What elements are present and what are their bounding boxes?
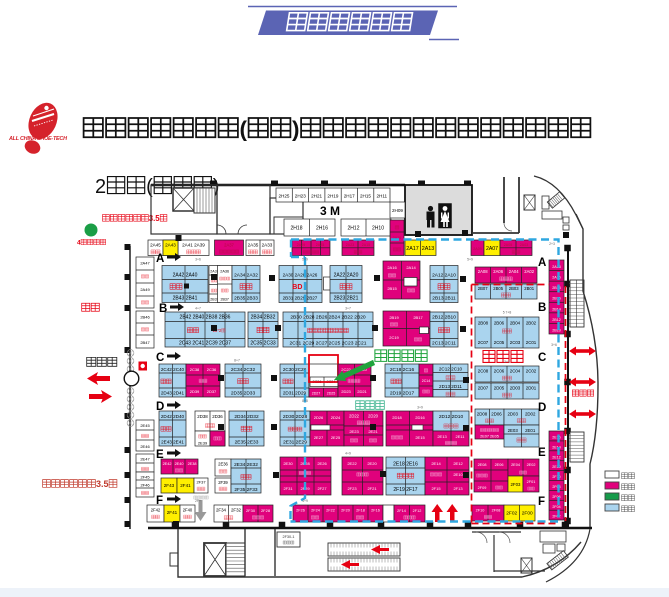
- svg-text:2H18: 2H18: [291, 226, 303, 232]
- svg-text:2F26: 2F26: [296, 509, 305, 513]
- svg-text:2B30 2B28 2B26 2B24 2B22 2B20: 2B30 2B28 2B26 2B24 2B22 2B20: [290, 315, 366, 321]
- svg-text:2F24: 2F24: [311, 509, 320, 513]
- svg-text:2E18 2E16: 2E18 2E16: [393, 462, 418, 468]
- svg-text:2A36: 2A36: [220, 270, 229, 274]
- svg-text:2A22 2A20: 2A22 2A20: [334, 273, 359, 279]
- svg-text:2A16: 2A16: [387, 265, 397, 270]
- svg-text:2B12: 2B12: [552, 318, 561, 322]
- svg-text:2E39: 2E39: [198, 441, 208, 446]
- svg-text:2E12: 2E12: [552, 455, 560, 459]
- svg-text:2A13: 2A13: [422, 246, 435, 252]
- svg-text:2C03: 2C03: [510, 340, 521, 345]
- svg-text:2A29: 2A29: [297, 243, 305, 247]
- svg-text:5+9: 5+9: [467, 258, 473, 262]
- svg-text:2D18: 2D18: [392, 415, 402, 420]
- svg-text:2D02: 2D02: [525, 412, 536, 417]
- svg-text:2B08: 2B08: [478, 321, 489, 326]
- svg-text:2F13: 2F13: [453, 486, 463, 491]
- svg-text:5 7+8: 5 7+8: [503, 311, 512, 315]
- svg-text:8+8: 8+8: [302, 399, 308, 403]
- svg-text:2D03: 2D03: [510, 386, 521, 391]
- svg-text:2E27: 2E27: [314, 435, 324, 440]
- svg-text:2E47: 2E47: [140, 457, 150, 462]
- svg-text:3+4: 3+4: [504, 360, 510, 364]
- svg-text:2F39: 2F39: [218, 480, 228, 485]
- svg-text:2A14: 2A14: [406, 265, 416, 270]
- svg-text:2A47: 2A47: [140, 261, 150, 266]
- svg-text:2E40: 2E40: [175, 462, 184, 466]
- svg-text:2F22: 2F22: [326, 509, 335, 513]
- svg-text:2C43 2C41 2C39 2C37: 2C43 2C41 2C39 2C37: [179, 341, 231, 347]
- svg-text:2B46: 2B46: [140, 315, 150, 320]
- svg-text:2E34 2E32: 2E34 2E32: [234, 462, 258, 468]
- svg-text:2F37: 2F37: [196, 480, 206, 485]
- svg-text:2F23: 2F23: [347, 486, 357, 491]
- svg-text:2E06: 2E06: [495, 463, 504, 467]
- svg-text:2E04: 2E04: [511, 463, 520, 467]
- svg-text:2C04: 2C04: [510, 369, 521, 374]
- svg-text:2A05: 2A05: [504, 243, 512, 247]
- svg-text:2A09: 2A09: [473, 247, 481, 251]
- svg-text:2F04: 2F04: [552, 505, 560, 509]
- svg-text:2H11: 2H11: [376, 194, 387, 199]
- svg-text:2F45: 2F45: [140, 475, 150, 480]
- svg-text:2F28: 2F28: [261, 508, 271, 513]
- svg-text:2H21: 2H21: [311, 194, 322, 199]
- svg-text:2D37: 2D37: [207, 389, 217, 394]
- svg-text:2E11: 2E11: [455, 434, 465, 439]
- svg-text:2H09: 2H09: [392, 208, 403, 213]
- svg-text:2E20: 2E20: [367, 461, 377, 466]
- svg-text:2C08: 2C08: [478, 369, 489, 374]
- svg-text:2B35 2B33: 2B35 2B33: [234, 296, 258, 302]
- svg-text:2B31 2B29 2B27: 2B31 2B29 2B27: [283, 296, 318, 301]
- svg-text:2E01: 2E01: [525, 428, 536, 433]
- svg-text:2F+: 2F+: [195, 499, 201, 503]
- svg-text:2H25: 2H25: [279, 194, 290, 199]
- svg-text:2C06: 2C06: [494, 369, 505, 374]
- svg-text:2C18 2C16: 2C18 2C16: [390, 367, 415, 373]
- svg-text:2F41: 2F41: [167, 510, 178, 515]
- svg-text:2E45: 2E45: [140, 423, 150, 428]
- svg-text:2F14: 2F14: [397, 509, 406, 513]
- svg-text:4+9: 4+9: [345, 452, 351, 456]
- svg-text:2D30 2D28: 2D30 2D28: [283, 414, 308, 420]
- svg-text:2E08: 2E08: [478, 463, 487, 467]
- svg-text:2F15: 2F15: [431, 486, 441, 491]
- svg-text:4+7: 4+7: [195, 307, 201, 311]
- svg-text:2A02: 2A02: [524, 269, 534, 274]
- svg-text:B: B: [538, 302, 546, 314]
- svg-text:2D05: 2D05: [494, 386, 505, 391]
- svg-text:2F09: 2F09: [478, 486, 487, 490]
- svg-text:2C12 2C10: 2C12 2C10: [439, 367, 463, 372]
- svg-text:2A33: 2A33: [262, 243, 273, 248]
- svg-text:2: 2: [95, 176, 106, 198]
- svg-text:2D38: 2D38: [197, 414, 208, 419]
- svg-text:2F19 2F17: 2F19 2F17: [393, 487, 417, 493]
- svg-text:2F30: 2F30: [246, 508, 256, 513]
- svg-text:(: (: [240, 117, 248, 142]
- svg-text:B: B: [159, 303, 167, 315]
- svg-text:2D25: 2D25: [327, 392, 336, 396]
- svg-text:3+7: 3+7: [345, 307, 351, 311]
- svg-text:2B02: 2B02: [526, 321, 537, 326]
- svg-text:2C31 2C29 2C27 2C25 2C23 2C21: 2C31 2C29 2C27 2C25 2C23 2C21: [290, 341, 367, 347]
- svg-text:C: C: [538, 352, 546, 364]
- svg-text:2B07: 2B07: [478, 286, 488, 291]
- svg-text:2B17: 2B17: [413, 315, 423, 320]
- svg-text:2H10: 2H10: [372, 226, 384, 232]
- svg-text:2A45: 2A45: [150, 243, 161, 248]
- svg-text:2C14: 2C14: [422, 379, 431, 383]
- svg-text:2A41 2A39: 2A41 2A39: [182, 243, 205, 248]
- svg-text:2D39: 2D39: [190, 389, 200, 394]
- svg-text:2D31 2D29: 2D31 2D29: [283, 391, 307, 396]
- svg-text:2H15: 2H15: [360, 194, 371, 199]
- svg-text:2F35 2F33: 2F35 2F33: [234, 487, 258, 493]
- svg-text:2F03: 2F03: [510, 482, 521, 487]
- svg-text:2C30 2C28: 2C30 2C28: [283, 367, 307, 372]
- svg-text:2B19: 2B19: [389, 315, 399, 320]
- svg-text:2F30-1: 2F30-1: [282, 535, 294, 539]
- svg-text:2D35 2D33: 2D35 2D33: [231, 391, 256, 397]
- svg-text:D: D: [156, 401, 164, 413]
- svg-text:2E46: 2E46: [140, 444, 150, 449]
- svg-text:2A06: 2A06: [493, 269, 503, 274]
- svg-text:A: A: [538, 257, 546, 269]
- svg-text:2A04: 2A04: [509, 269, 519, 274]
- svg-text:2C19: 2C19: [389, 335, 399, 340]
- svg-text:2F20: 2F20: [341, 509, 350, 513]
- svg-text:2D36: 2D36: [212, 414, 223, 419]
- svg-text:2C34 2C32: 2C34 2C32: [231, 367, 256, 373]
- svg-text:2D01: 2D01: [526, 386, 537, 391]
- svg-text:2D03: 2D03: [507, 412, 518, 417]
- svg-text:2B05: 2B05: [493, 286, 503, 291]
- svg-text:4: 4: [77, 240, 81, 247]
- svg-text:2E23: 2E23: [349, 429, 359, 434]
- svg-text:2D42 2D40: 2D42 2D40: [161, 414, 185, 419]
- svg-text:5+9: 5+9: [302, 258, 308, 262]
- svg-text:2C05: 2C05: [494, 340, 505, 345]
- svg-text:2E35 2E33: 2E35 2E33: [235, 440, 259, 446]
- svg-text:3.5: 3.5: [96, 479, 109, 489]
- svg-text:2E42: 2E42: [163, 462, 172, 466]
- svg-text:A: A: [156, 253, 164, 265]
- svg-text:2E26: 2E26: [317, 461, 327, 466]
- svg-text:2F21: 2F21: [367, 486, 377, 491]
- svg-text:2E14: 2E14: [431, 461, 441, 466]
- svg-text:2F16: 2F16: [371, 509, 380, 513]
- svg-text:2B42 2B40 2B38 2B36: 2B42 2B40 2B38 2B36: [180, 315, 231, 321]
- svg-text:D: D: [538, 402, 546, 414]
- svg-text:2E30: 2E30: [283, 461, 293, 466]
- svg-text:2F27: 2F27: [317, 486, 327, 491]
- svg-text:2B43 2B41: 2B43 2B41: [173, 296, 198, 302]
- svg-text:2+3: 2+3: [549, 242, 555, 246]
- svg-text:2B01: 2B01: [524, 286, 534, 291]
- svg-text:2A07: 2A07: [486, 246, 498, 252]
- svg-text:F: F: [156, 495, 163, 507]
- svg-text:2D20: 2D20: [368, 414, 379, 419]
- svg-text:2F08: 2F08: [492, 509, 501, 513]
- svg-text:2D06: 2D06: [491, 412, 502, 417]
- svg-text:2H12: 2H12: [348, 226, 360, 232]
- svg-text:2C42 2C40: 2C42 2C40: [161, 367, 185, 372]
- svg-text:2A37: 2A37: [224, 243, 234, 248]
- svg-text:2D27: 2D27: [312, 392, 321, 396]
- svg-text:2D07: 2D07: [478, 386, 489, 391]
- svg-text:2E13: 2E13: [437, 434, 447, 439]
- svg-text:2B04: 2B04: [510, 321, 521, 326]
- svg-text:2E31 2E29: 2E31 2E29: [283, 440, 307, 446]
- svg-text:2B37: 2B37: [220, 298, 228, 302]
- svg-text:2A34 2A32: 2A34 2A32: [234, 273, 258, 279]
- svg-text:2E02: 2E02: [527, 463, 536, 467]
- svg-text:2B47: 2B47: [140, 340, 150, 345]
- svg-text:3+6: 3+6: [551, 343, 557, 347]
- svg-text:2F10: 2F10: [476, 509, 485, 513]
- svg-text:2E03: 2E03: [508, 428, 519, 433]
- svg-text:2F18: 2F18: [356, 509, 365, 513]
- svg-text:2F42: 2F42: [151, 508, 161, 513]
- svg-text:2A30 2A28 2A26: 2A30 2A28 2A26: [283, 273, 318, 278]
- svg-text:2A17: 2A17: [406, 246, 419, 252]
- svg-text:2F31: 2F31: [283, 486, 293, 491]
- svg-text:2B15: 2B15: [387, 286, 397, 291]
- svg-text:2E22: 2E22: [347, 461, 357, 466]
- svg-text:2H23: 2H23: [295, 194, 306, 199]
- svg-text:2D19 2D17: 2D19 2D17: [390, 391, 415, 397]
- svg-text:2F41: 2F41: [180, 483, 191, 488]
- svg-text:2D21: 2D21: [357, 389, 367, 394]
- svg-text:2A15: 2A15: [362, 243, 370, 247]
- svg-text:2C35 2C33: 2C35 2C33: [250, 341, 276, 347]
- svg-text:2B23 2B21: 2B23 2B21: [334, 296, 359, 302]
- svg-text:2C07: 2C07: [478, 340, 489, 345]
- svg-text:2H16: 2H16: [316, 226, 328, 232]
- svg-text:2D13 2D11: 2D13 2D11: [439, 384, 462, 389]
- svg-text:2A12 2A10: 2A12 2A10: [432, 273, 456, 279]
- svg-text:2C36: 2C36: [207, 367, 217, 372]
- svg-text:3+9: 3+9: [417, 406, 423, 410]
- svg-text:F: F: [538, 496, 545, 508]
- svg-text:2A42 2A40: 2A42 2A40: [173, 273, 198, 279]
- svg-text:2B06: 2B06: [494, 321, 505, 326]
- svg-text:2F01: 2F01: [527, 480, 536, 484]
- svg-text:2A23: 2A23: [346, 243, 354, 247]
- svg-text:C: C: [156, 352, 164, 364]
- svg-text:2E38: 2E38: [188, 462, 197, 466]
- svg-text:2F43: 2F43: [164, 483, 175, 488]
- svg-text:2F34: 2F34: [216, 508, 227, 513]
- svg-text:2A03: 2A03: [520, 243, 528, 247]
- svg-text:2F00: 2F00: [522, 511, 533, 517]
- svg-text:2B03: 2B03: [509, 286, 519, 291]
- svg-text:2D24: 2D24: [331, 415, 341, 420]
- svg-text:2A35: 2A35: [248, 243, 259, 248]
- svg-text:2E10: 2E10: [453, 472, 463, 477]
- svg-text:4+9: 4+9: [302, 499, 308, 503]
- svg-text:2B13 2B11: 2B13 2B11: [432, 296, 456, 302]
- svg-text:2F32: 2F32: [231, 508, 242, 513]
- svg-text:2A08: 2A08: [478, 269, 488, 274]
- svg-text:2F40: 2F40: [183, 508, 193, 513]
- svg-text:E: E: [538, 447, 546, 459]
- svg-text:2A25: 2A25: [316, 243, 324, 247]
- svg-text:2F46: 2F46: [140, 483, 150, 488]
- svg-text:E: E: [156, 449, 164, 461]
- svg-text:2A49: 2A49: [140, 287, 150, 292]
- svg-text:): ): [292, 117, 300, 142]
- svg-text:3 M: 3 M: [320, 204, 340, 218]
- svg-text:2D43 2D41: 2D43 2D41: [161, 391, 185, 396]
- svg-text:2C02: 2C02: [526, 369, 537, 374]
- svg-text:2D16: 2D16: [415, 415, 425, 420]
- svg-text:2C01: 2C01: [526, 340, 537, 345]
- svg-text:2A43: 2A43: [165, 243, 176, 248]
- svg-text:2E12: 2E12: [453, 461, 463, 466]
- svg-text:2E25: 2E25: [331, 435, 341, 440]
- svg-text:2D12 2D10: 2D12 2D10: [439, 414, 464, 420]
- svg-text:2F12: 2F12: [413, 509, 422, 513]
- svg-text:2F02: 2F02: [506, 511, 517, 517]
- svg-text:2D22: 2D22: [349, 414, 360, 419]
- svg-text:2H17: 2H17: [344, 194, 355, 199]
- svg-text:2E15: 2E15: [415, 435, 425, 440]
- svg-text:2D08: 2D08: [477, 412, 488, 417]
- svg-text:2D23: 2D23: [341, 389, 351, 394]
- svg-text:2E07 2E05: 2E07 2E05: [480, 435, 499, 439]
- svg-text:2H19: 2H19: [327, 194, 338, 199]
- svg-text:2B34 2B32: 2B34 2B32: [251, 315, 276, 321]
- svg-text:3+6: 3+6: [195, 258, 201, 262]
- svg-text:ALL CHINA SHOE-TECH: ALL CHINA SHOE-TECH: [8, 136, 67, 142]
- svg-text:2D26: 2D26: [314, 415, 324, 420]
- svg-text:2E36: 2E36: [218, 462, 228, 467]
- svg-text:2E43 2E41: 2E43 2E41: [161, 440, 184, 445]
- svg-text:2D34 2D32: 2D34 2D32: [234, 414, 259, 420]
- svg-text:BD: BD: [292, 284, 302, 291]
- svg-text:2C38: 2C38: [190, 367, 200, 372]
- svg-text:(: (: [146, 176, 153, 198]
- svg-text:8+7: 8+7: [234, 359, 240, 363]
- svg-text:2C13 2C11: 2C13 2C11: [432, 341, 456, 347]
- svg-text:2B12 2B10: 2B12 2B10: [432, 315, 456, 321]
